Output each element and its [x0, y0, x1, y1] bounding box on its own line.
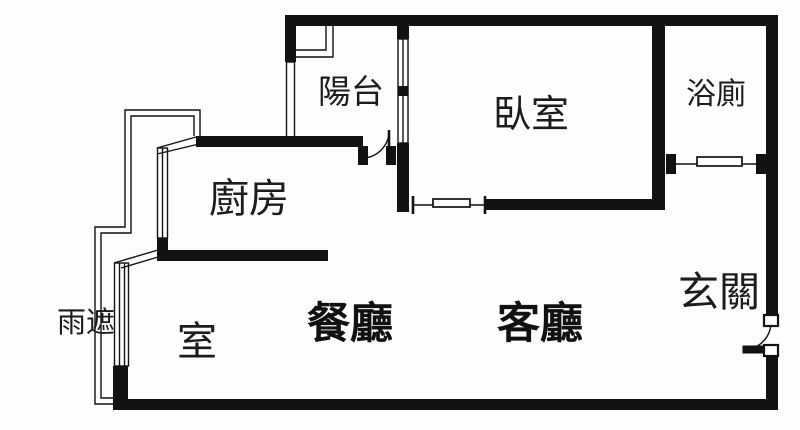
door-jamb-top	[764, 315, 778, 326]
room-label-rain-cover: 雨遮	[57, 306, 115, 339]
room-label-room: 室	[177, 319, 217, 364]
wall-kitchen-right	[397, 143, 409, 212]
kitchen-left-window	[158, 148, 168, 238]
room-label-bathroom: 浴廁	[686, 78, 746, 111]
wall-left-lower	[113, 366, 128, 406]
notch-outer	[296, 26, 333, 57]
floor-plan-canvas: 陽台 臥室 浴廁 廚房 雨遮 室 餐廳 客廳 玄關	[0, 0, 800, 430]
room-label-bedroom: 臥室	[493, 94, 569, 136]
floor-plan: 陽台 臥室 浴廁 廚房 雨遮 室 餐廳 客廳 玄關	[0, 0, 800, 430]
door-jamb-bottom	[764, 345, 778, 356]
bedroom-sliding-door	[412, 196, 486, 214]
cap-balcony-window-top	[397, 26, 409, 39]
door-leaf	[697, 157, 742, 166]
wall-kitchen-bottom	[157, 250, 328, 261]
bathroom-sliding-door	[676, 157, 756, 166]
jamb-balcony-door-right	[386, 146, 396, 165]
kitchen-corner-mitre	[157, 137, 199, 154]
room-left-window	[115, 263, 129, 366]
jamb-bathroom-door-right	[756, 154, 766, 174]
wall-right-upper	[766, 15, 778, 321]
wall-bottom	[113, 399, 778, 410]
jamb-bathroom-door-left	[666, 154, 676, 174]
door-leaf	[433, 199, 470, 207]
room-label-balcony: 陽台	[318, 74, 384, 111]
wall-kitchen-top	[196, 136, 363, 147]
wall-balcony-left-upper	[285, 15, 296, 62]
balcony-left-window	[287, 62, 295, 137]
room-label-dining: 餐廳	[307, 300, 393, 348]
room-corner-mitre	[114, 250, 158, 268]
balcony-corner-notch	[296, 26, 333, 57]
notch-inner	[296, 26, 326, 50]
room-label-entryway: 玄關	[678, 269, 760, 315]
entrance-door	[743, 315, 778, 356]
room-label-kitchen: 廚房	[209, 176, 289, 221]
window-frame	[115, 263, 129, 366]
mitre-line	[114, 250, 158, 263]
room-label-living: 客廳	[497, 300, 583, 348]
cap-kitchen-window-bottom	[157, 238, 168, 251]
wall-top	[285, 15, 778, 26]
wall-bedroom-bottom	[486, 199, 665, 210]
wall-bedroom-bathroom-divider	[652, 15, 665, 210]
window-frame	[287, 62, 295, 137]
jamb-balcony-door-left	[358, 146, 368, 165]
